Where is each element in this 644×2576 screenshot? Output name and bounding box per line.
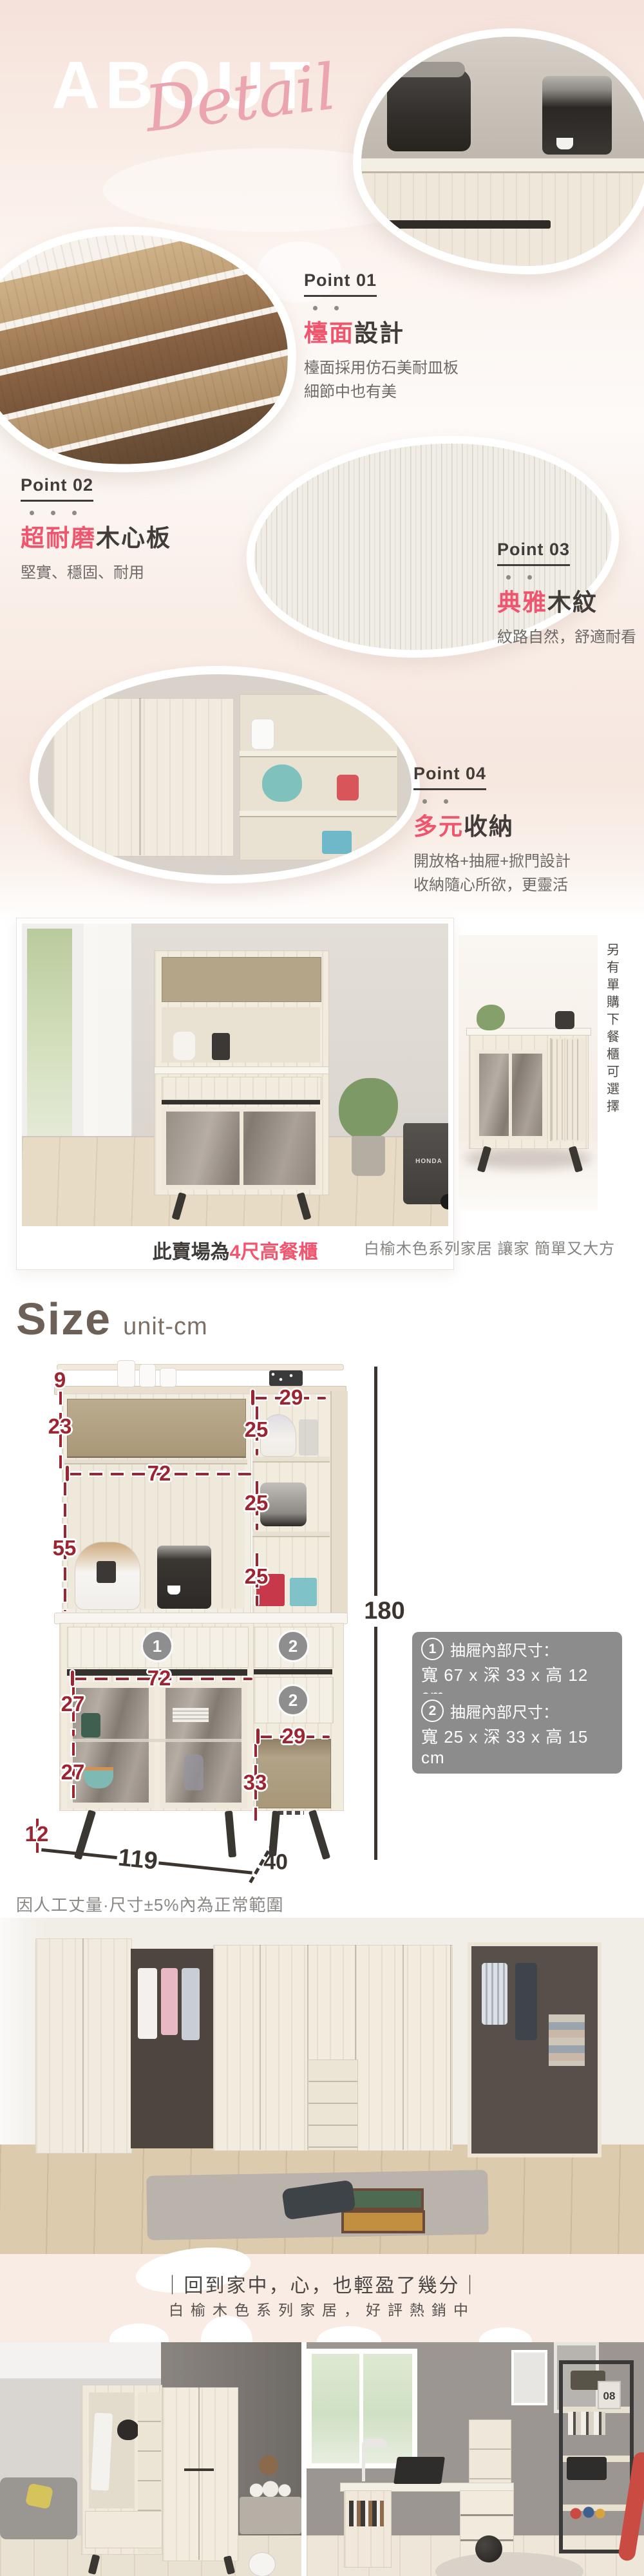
point-02-dots (30, 507, 252, 512)
calendar-number: 08 (599, 2390, 620, 2403)
mini-dark-strip (162, 1100, 320, 1104)
bowls-inside (84, 1767, 113, 1788)
photo-countertop-appliances (353, 28, 644, 274)
rice-cooker-screen (97, 1561, 116, 1583)
cab-side-panel (330, 1391, 348, 1614)
cart-label: HONDA (403, 1158, 448, 1165)
point-01-label: Point 01 (304, 270, 377, 297)
wardrobe-left-seam (82, 1938, 84, 2152)
note-2-dims: 寬 25 x 深 33 x 高 15 cm (421, 1724, 613, 1768)
point-04-dots (422, 795, 620, 800)
shelf-toys (569, 2505, 605, 2520)
note-2-title: 抽屜內部尺寸： (450, 1700, 558, 1722)
photo-desk-room: 08 (307, 2342, 644, 2576)
point-02-label: Point 02 (21, 475, 93, 502)
pedestal-books (349, 2501, 384, 2526)
photo-sideboard (459, 935, 598, 1211)
jar-3 (160, 1368, 176, 1387)
hutch-flip-door (67, 1399, 246, 1458)
photo-hallway-cabinet (0, 2342, 301, 2576)
mini-appliance-1 (173, 1032, 195, 1060)
mini-door-mullion (240, 1107, 243, 1189)
pressure-cooker-lid (393, 62, 465, 77)
badge-right-drawer-bottom: 2 (277, 1684, 309, 1716)
point-03-title: 典雅木紋 (497, 583, 643, 618)
plant-on-top (477, 1005, 505, 1030)
point-02-title: 超耐磨木心板 (21, 518, 252, 553)
cab-leg-4 (308, 1810, 330, 1860)
wall-frame-1 (511, 2350, 547, 2405)
shelf-books (568, 2412, 605, 2435)
utensil-jar (299, 1419, 318, 1455)
hanging-clothes-3 (182, 1968, 200, 2040)
shelf-board-bottom (240, 811, 397, 817)
photo-hutch-storage (30, 666, 420, 884)
dim-inner-bottom-width: 72 (147, 1666, 171, 1690)
tick-72-bottom (70, 1669, 75, 1687)
espresso-cup (167, 1586, 180, 1595)
point-04-label: Point 04 (413, 764, 486, 790)
robot-vacuum (249, 2552, 276, 2576)
vent-slots (278, 1811, 304, 1815)
shelf-board-top (240, 751, 397, 757)
cat-face-bag (117, 2420, 139, 2440)
dim-niche-height: 33 (243, 1770, 267, 1795)
wardrobe-left (35, 1938, 132, 2154)
dim-top-board: 9 (54, 1368, 66, 1392)
glass-door-right (160, 1682, 247, 1808)
cabinet-front (361, 169, 644, 266)
wardrobe-center-drawers (308, 2060, 358, 2151)
right-hanging-dark (515, 1963, 537, 2040)
step-vases (250, 2476, 291, 2497)
tick-29-bottom (255, 1727, 261, 1745)
dim-open-height: 55 (53, 1536, 77, 1560)
point-01-title: 檯面設計 (304, 314, 516, 348)
col-shelf-1 (252, 1457, 330, 1463)
jar-2 (139, 1364, 156, 1387)
mini-drawer (162, 1077, 321, 1100)
tick-72-top (64, 1464, 70, 1482)
point-04-block: Point 04 多元收納 開放格+抽屜+掀門設計收納隨心所欲，更靈活 (413, 764, 620, 897)
dim-cell-b: 25 (245, 1491, 269, 1515)
tall-cabinet-handle (184, 2468, 214, 2471)
vintage-drawer-bottom (341, 2210, 425, 2233)
dim-door-upper: 27 (61, 1692, 85, 1716)
hanging-clothes-1 (138, 1968, 157, 2039)
cab-top-back-edge (57, 1364, 344, 1370)
note-1-badge: 1 (421, 1638, 444, 1660)
size-title: Size (16, 1293, 111, 1345)
stone-step (240, 2497, 301, 2534)
kettle-on-top (555, 1011, 574, 1029)
shelf-printer (567, 2457, 607, 2480)
point-01-dots (313, 302, 516, 307)
pressure-cooker (387, 69, 471, 151)
patterned-box (269, 1370, 303, 1386)
dim-cell-c: 25 (245, 1564, 269, 1589)
tall-cabinet (162, 2387, 238, 2561)
width-line-right (158, 1861, 252, 1874)
dim-total-height: 180 (364, 1598, 404, 1625)
counter-board (361, 158, 644, 173)
decor-balls (259, 2456, 278, 2475)
col-shelf-2 (252, 1531, 330, 1537)
dim-right-col-width: 29 (279, 1385, 303, 1410)
dim-cell-a: 25 (245, 1417, 269, 1442)
vertical-note-text: 另有單購下餐櫃可選擇 (603, 935, 621, 1146)
point-04-text: 開放格+抽屜+掀門設計收納隨心所欲，更靈活 (413, 849, 620, 897)
door-seam (139, 698, 141, 855)
dim-inner-top-width: 72 (147, 1461, 171, 1486)
tick-29-top (250, 1388, 256, 1406)
sideboard-mullion (509, 1050, 512, 1140)
blue-box (322, 831, 352, 854)
mini-appliance-2 (212, 1033, 230, 1060)
mini-counter (154, 1066, 329, 1074)
dim-total-width: 119 (117, 1844, 158, 1875)
point-02-block: Point 02 超耐磨木心板 堅實、穩固、耐用 (21, 475, 252, 585)
right-folded-stacks (549, 2014, 585, 2066)
plates-inside (173, 1708, 209, 1722)
height-line-upper (374, 1367, 377, 1596)
point-01-text: 檯面採用仿石美耐皿板細節中也有美 (304, 356, 516, 404)
dim-door-lower: 27 (61, 1760, 85, 1785)
folding-cart: HONDA (403, 1122, 448, 1204)
showcase-right-caption: 白榆木色系列家居 讓家 簡單又大方 (348, 1236, 631, 1262)
tall-cabinet-seam (198, 2387, 200, 2560)
vertical-note-strip: 另有單購下餐櫃可選擇 (598, 935, 626, 1146)
glass-shelf-line (73, 1739, 241, 1742)
cab-leg-2 (225, 1811, 236, 1858)
drawer-note-2: 2抽屜內部尺寸： 寬 25 x 深 33 x 高 15 cm (412, 1694, 622, 1774)
caption-accent: 4尺高餐櫃 (230, 1242, 318, 1263)
point-03-dots (506, 571, 643, 576)
point-03-block: Point 03 典雅木紋 紋路自然，舒適耐看 (497, 540, 643, 649)
right-drawer-strip (254, 1669, 332, 1674)
note-1-title: 抽屜內部尺寸： (450, 1638, 558, 1660)
right-hanging-shirt (482, 1963, 507, 2025)
coffee-machine (542, 76, 612, 155)
jar-1 (117, 1360, 135, 1387)
badge-right-drawer-top: 2 (277, 1630, 309, 1662)
red-mug (337, 775, 359, 800)
height-line-lower (374, 1627, 377, 1860)
photo-tall-cabinet-room: HONDA (22, 923, 448, 1226)
jug-inside (184, 1754, 204, 1790)
point-03-text: 紋路自然，舒適耐看 (497, 625, 643, 649)
point-01-block: Point 01 檯面設計 檯面採用仿石美耐皿板細節中也有美 (304, 270, 516, 404)
teal-kettle (262, 764, 302, 802)
gift-box-teal (290, 1578, 317, 1606)
window-panes (27, 929, 72, 1137)
espresso-machine (157, 1546, 211, 1609)
point-02-text: 堅實、穩固、耐用 (21, 561, 252, 585)
plank-grain (0, 230, 292, 470)
cart-lid (401, 1115, 448, 1123)
photo-wardrobe-room (0, 1918, 644, 2254)
point-04-title: 多元收納 (413, 807, 620, 842)
desk-lamp (362, 2439, 388, 2481)
size-unit: unit-cm (123, 1313, 208, 1341)
note-2-badge: 2 (421, 1700, 444, 1722)
sideboard-ribs (551, 1039, 582, 1140)
dim-total-depth: 40 (263, 1850, 288, 1875)
vintage-drawer-top (348, 2188, 424, 2210)
size-disclaimer: 因人工丈量·尺寸±5%內為正常範圍 (16, 1892, 284, 1916)
calendar-sign: 08 (598, 2381, 621, 2409)
point-03-label: Point 03 (497, 540, 570, 566)
dim-hutch-door: 23 (48, 1414, 72, 1439)
plant (339, 1078, 398, 1140)
white-jar (251, 719, 274, 750)
laptop (393, 2457, 445, 2484)
caption-prefix: 此賣場為 (153, 1242, 230, 1263)
mug-inside (81, 1713, 100, 1738)
footer-slogan: ｜回到家中，心，也輕盈了幾分｜ (0, 2272, 644, 2300)
hall-unit-drawer (85, 2511, 162, 2548)
size-title-row: Size unit-cm (16, 1293, 208, 1345)
hanging-clothes-2 (161, 1968, 178, 2035)
mini-flip-door (162, 957, 321, 1002)
badge-left-drawer: 1 (141, 1630, 173, 1662)
drawer-gap (373, 220, 551, 229)
photo-wood-planks (0, 221, 301, 478)
plant-pot (352, 1136, 385, 1176)
footer-series: 白榆木色系列家居，好評熱銷中 (0, 2300, 644, 2320)
coffee-cup (556, 138, 573, 149)
cabinet-doors (53, 698, 233, 856)
globe-decor (475, 2535, 502, 2562)
niche-open (256, 1739, 331, 1808)
dim-leg-height: 12 (25, 1822, 49, 1846)
dim-niche-width: 29 (282, 1724, 306, 1748)
